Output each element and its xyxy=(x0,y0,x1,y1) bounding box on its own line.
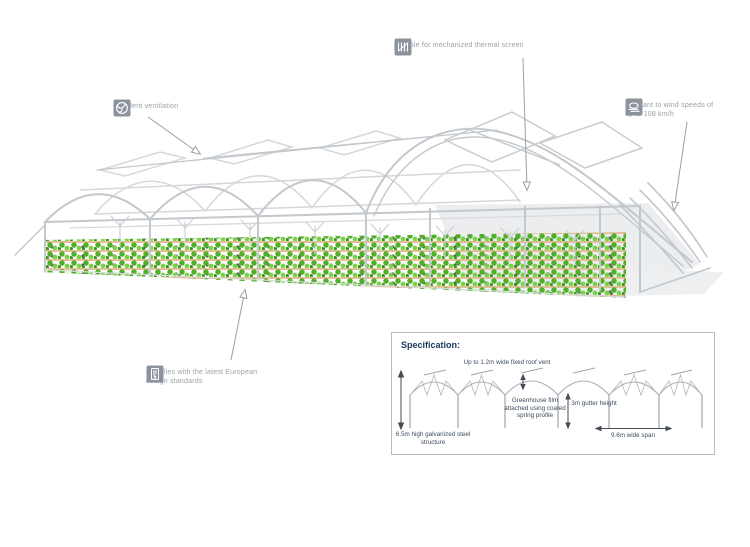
spec-structure-label: 6.5m high galvanized steel structure xyxy=(392,431,474,446)
end-braces xyxy=(620,183,710,292)
callout-thermal-screen-label: suitable for mechanized thermal screen xyxy=(394,38,524,50)
greenhouse-brochure-page: excellent ventilation suitable for mecha… xyxy=(0,0,750,547)
callout-standards: complies with the latest European design… xyxy=(146,365,258,386)
standards-leader xyxy=(231,290,245,360)
interior-columns xyxy=(111,216,584,264)
spec-span-label: 9.6m wide span xyxy=(588,432,678,440)
callout-wind: resistant to wind speeds of up to 108 km… xyxy=(625,98,722,119)
spec-gutter-label: 3m gutter height xyxy=(571,400,617,408)
certificate-icon xyxy=(146,365,164,383)
callout-thermal-screen: suitable for mechanized thermal screen xyxy=(394,38,524,50)
callout-ventilation: excellent ventilation xyxy=(113,99,178,111)
thermal-screen-icon xyxy=(394,38,412,56)
spec-film-label: Greenhouse film attached using coated sp… xyxy=(502,397,568,420)
ventilation-leader xyxy=(148,117,200,154)
roof-vent-wings xyxy=(445,112,642,168)
thermal-screen-leader xyxy=(523,58,527,190)
spec-roof-vent-label: Up to 1.2m wide fixed roof vent xyxy=(462,359,552,367)
section-arches xyxy=(410,368,702,395)
wind-leader xyxy=(674,122,687,210)
wind-icon xyxy=(625,98,643,116)
fan-icon xyxy=(113,99,131,117)
greenhouse-illustration xyxy=(0,0,750,547)
specification-box: Specification: xyxy=(391,332,715,455)
